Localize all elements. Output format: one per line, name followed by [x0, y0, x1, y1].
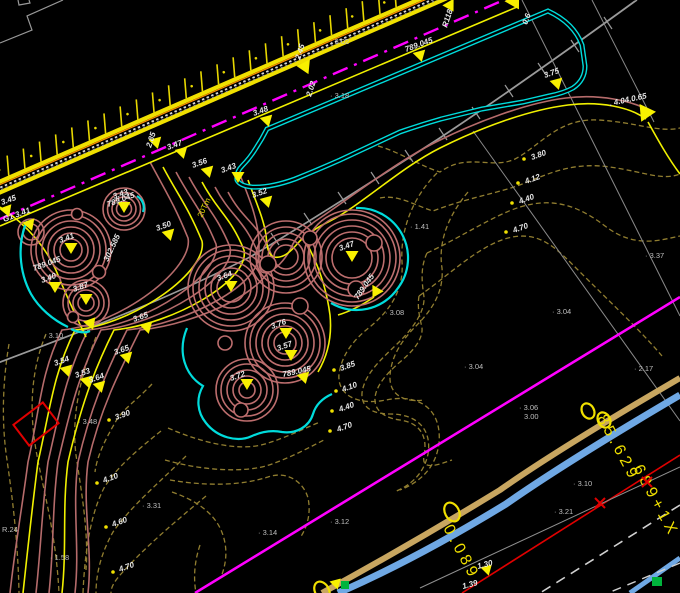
- svg-text:· 3.04: · 3.04: [464, 362, 483, 371]
- svg-text:· 1.41: · 1.41: [410, 222, 429, 231]
- svg-text:R.24: R.24: [2, 525, 18, 534]
- svg-text:· 2.17: · 2.17: [634, 364, 653, 373]
- svg-text:· 3.48: · 3.48: [78, 417, 97, 426]
- svg-text:3.00: 3.00: [524, 412, 539, 421]
- svg-text:· 3.10: · 3.10: [44, 331, 63, 340]
- svg-text:· 3.31: · 3.31: [142, 501, 161, 510]
- svg-text:· 3.12: · 3.12: [330, 517, 349, 526]
- svg-text:· 3.02: · 3.02: [330, 37, 349, 46]
- svg-text:· 3.08: · 3.08: [385, 308, 404, 317]
- svg-text:· 3.10: · 3.10: [573, 479, 592, 488]
- svg-text:· 1.58: · 1.58: [50, 553, 69, 562]
- svg-text:· 3.21: · 3.21: [554, 507, 573, 516]
- svg-text:· 3.14: · 3.14: [258, 528, 277, 537]
- svg-text:· 3.18: · 3.18: [330, 91, 349, 100]
- svg-text:· 3.04: · 3.04: [552, 307, 571, 316]
- svg-text:· 3.37: · 3.37: [645, 251, 664, 260]
- svg-text:· 3.06: · 3.06: [519, 403, 538, 412]
